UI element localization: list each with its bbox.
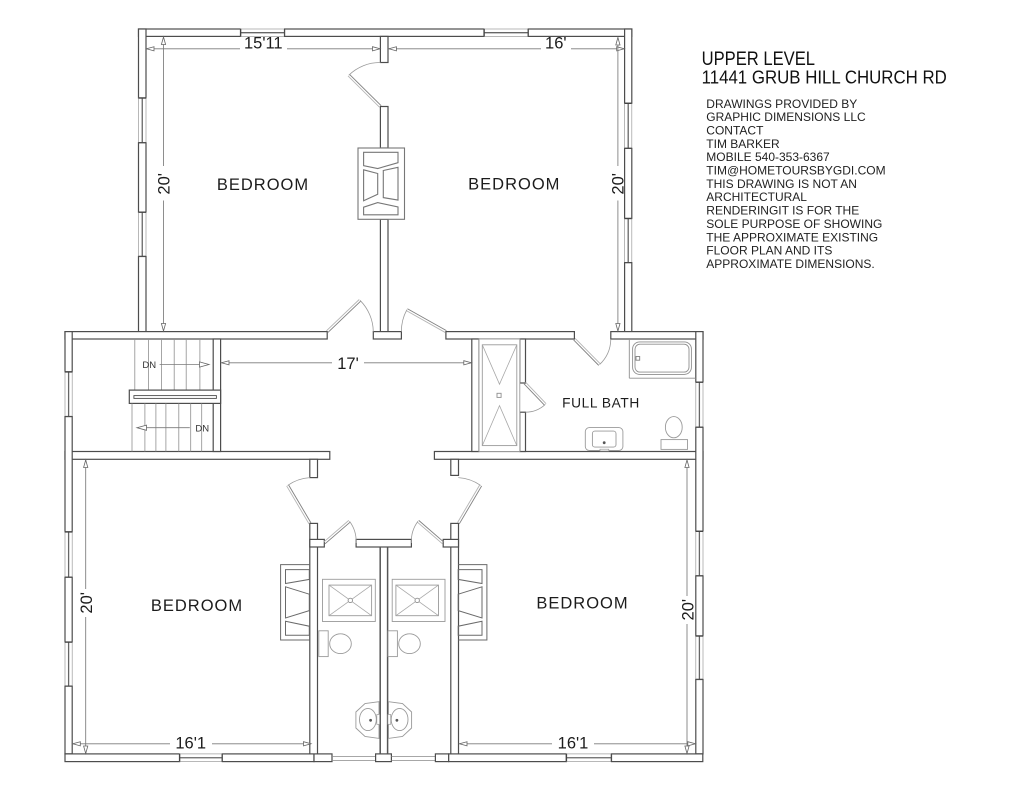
svg-text:TIM BARKER: TIM BARKER — [706, 137, 780, 151]
svg-text:20': 20' — [78, 592, 96, 614]
svg-text:THIS DRAWING IS NOT AN: THIS DRAWING IS NOT AN — [706, 177, 857, 191]
svg-text:BEDROOM: BEDROOM — [468, 176, 560, 194]
svg-text:BEDROOM: BEDROOM — [151, 597, 243, 615]
svg-text:BEDROOM: BEDROOM — [536, 594, 628, 612]
svg-text:BEDROOM: BEDROOM — [217, 176, 309, 194]
svg-text:DN: DN — [195, 424, 209, 435]
svg-text:17': 17' — [337, 355, 359, 373]
svg-text:RENDERINGIT IS FOR THE: RENDERINGIT IS FOR THE — [706, 204, 859, 218]
svg-text:20': 20' — [680, 599, 698, 621]
svg-text:THE APPROXIMATE EXISTING: THE APPROXIMATE EXISTING — [706, 230, 878, 244]
svg-text:MOBILE 540-353-6367: MOBILE 540-353-6367 — [706, 150, 830, 164]
svg-text:FLOOR PLAN AND ITS: FLOOR PLAN AND ITS — [706, 244, 832, 258]
svg-text:DN: DN — [142, 360, 156, 371]
svg-text:16': 16' — [545, 34, 567, 52]
svg-text:20': 20' — [610, 173, 628, 195]
svg-text:11441 GRUB HILL CHURCH RD: 11441 GRUB HILL CHURCH RD — [702, 67, 947, 87]
svg-text:APPROXIMATE DIMENSIONS.: APPROXIMATE DIMENSIONS. — [706, 257, 874, 271]
svg-text:SOLE PURPOSE OF SHOWING: SOLE PURPOSE OF SHOWING — [706, 217, 882, 231]
svg-text:TIM@HOMETOURSBYGDI.COM: TIM@HOMETOURSBYGDI.COM — [706, 164, 885, 178]
svg-text:ARCHITECTURAL: ARCHITECTURAL — [706, 190, 807, 204]
svg-text:GRAPHIC DIMENSIONS LLC: GRAPHIC DIMENSIONS LLC — [706, 110, 866, 124]
svg-text:15'11: 15'11 — [244, 34, 283, 52]
svg-text:16'1: 16'1 — [558, 735, 589, 753]
svg-text:16'1: 16'1 — [175, 735, 206, 753]
svg-text:20': 20' — [156, 173, 174, 195]
svg-text:DRAWINGS PROVIDED BY: DRAWINGS PROVIDED BY — [706, 97, 857, 111]
svg-text:FULL BATH: FULL BATH — [562, 395, 640, 410]
svg-text:CONTACT: CONTACT — [706, 124, 764, 138]
